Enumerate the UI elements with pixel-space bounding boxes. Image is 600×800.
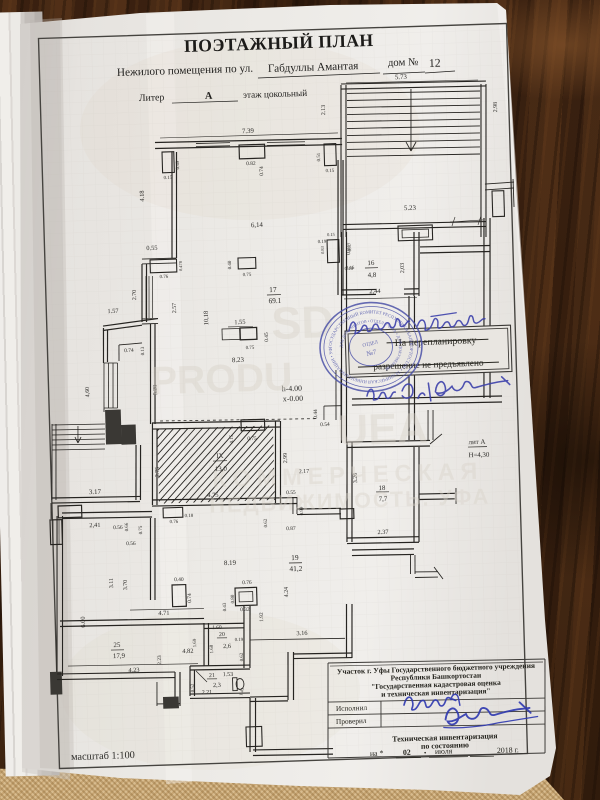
svg-text:0.56: 0.56 [113,525,123,531]
svg-text:0.74: 0.74 [124,348,134,354]
svg-text:Литер: Литер [139,92,165,104]
svg-text:июля: июля [435,746,453,756]
svg-text:2.57: 2.57 [172,303,178,314]
svg-text:0.19: 0.19 [235,638,244,643]
svg-text:20: 20 [219,632,225,638]
svg-text:5.73: 5.73 [395,74,408,81]
svg-text:0.15: 0.15 [326,169,335,174]
svg-text:SD: SD [271,296,335,349]
svg-text:2.13: 2.13 [321,105,327,116]
svg-text:17: 17 [269,285,277,294]
svg-text:21: 21 [209,673,215,679]
svg-text:4.18: 4.18 [139,190,146,201]
svg-text:5.23: 5.23 [404,205,417,212]
svg-text:0.82: 0.82 [246,161,256,167]
svg-text:6,14: 6,14 [251,222,264,229]
svg-text:UEA: UEA [336,404,428,455]
svg-text:2.98: 2.98 [493,102,499,113]
svg-text:4.24: 4.24 [284,587,290,598]
svg-text:0.83: 0.83 [320,245,325,254]
svg-text:7.39: 7.39 [242,128,255,135]
svg-text:4,8: 4,8 [368,272,377,279]
svg-text:0.74: 0.74 [259,166,265,176]
svg-text:А: А [205,91,213,102]
svg-text:0.66: 0.66 [125,522,130,531]
svg-text:масштаб 1:100: масштаб 1:100 [71,750,135,763]
svg-text:12: 12 [429,56,441,70]
svg-text:3.11: 3.11 [109,578,115,588]
svg-text:0.87: 0.87 [348,242,353,251]
svg-text:1.69: 1.69 [193,638,198,647]
svg-text:0.44: 0.44 [313,409,319,419]
svg-text:Проверил: Проверил [336,716,367,726]
svg-text:0.80: 0.80 [231,594,236,603]
svg-text:2,3: 2,3 [213,682,221,689]
svg-text:4.82: 4.82 [182,648,193,655]
svg-text:2.23: 2.23 [157,655,163,665]
svg-text:0.32: 0.32 [240,607,250,613]
svg-text:10,18: 10,18 [203,311,210,326]
svg-text:41,2: 41,2 [289,564,302,573]
svg-text:2.21: 2.21 [202,690,212,696]
svg-text:0.75: 0.75 [139,525,144,534]
svg-text:0.15: 0.15 [327,232,336,237]
svg-text:3.70: 3.70 [123,580,129,591]
svg-text:0.18: 0.18 [185,514,194,519]
svg-text:2.37: 2.37 [377,529,388,536]
svg-text:2,44: 2,44 [369,288,381,295]
svg-text:4,60: 4,60 [85,387,91,398]
svg-text:0.74: 0.74 [187,593,193,603]
svg-text:1.57: 1.57 [107,308,118,315]
svg-text:1.60: 1.60 [212,625,222,631]
svg-text:0.62: 0.62 [264,518,269,527]
svg-text:0.54: 0.54 [320,422,330,428]
svg-text:на *: на * [370,749,384,758]
svg-text:IX: IX [216,453,223,460]
svg-text:8.19: 8.19 [224,560,237,567]
svg-text:16: 16 [367,260,375,267]
svg-text:0.478: 0.478 [178,260,183,271]
svg-text:2018 г.: 2018 г. [497,745,519,755]
svg-text:1.68: 1.68 [210,644,215,653]
svg-text:0.75: 0.75 [243,273,252,278]
svg-text:1.92: 1.92 [259,612,265,622]
svg-text:19: 19 [291,553,299,562]
svg-text:0.55: 0.55 [146,245,157,252]
svg-text:3.17: 3.17 [89,489,102,496]
svg-text:Исполнил: Исполнил [336,703,368,713]
svg-text:02: 02 [403,748,411,757]
svg-text:0.51: 0.51 [317,152,322,161]
svg-text:лит А: лит А [469,439,486,447]
svg-text:0.76: 0.76 [170,520,179,525]
svg-text:PRODU: PRODU [150,355,293,404]
svg-text:0.87: 0.87 [286,526,296,532]
svg-text:4.71: 4.71 [158,610,169,617]
svg-text:2,03: 2,03 [400,263,406,274]
svg-text:0.76: 0.76 [242,580,252,586]
svg-text:1.55: 1.55 [234,319,245,326]
svg-text:0.52: 0.52 [191,683,196,692]
svg-text:2,41: 2,41 [89,522,100,529]
svg-text:25: 25 [113,642,121,649]
svg-text:3.16: 3.16 [296,630,307,637]
svg-text:0.56: 0.56 [126,541,136,547]
svg-text:0.75: 0.75 [246,346,255,351]
svg-text:0.43: 0.43 [223,602,228,611]
svg-text:1.53: 1.53 [223,672,233,678]
svg-text:0.45: 0.45 [264,332,270,342]
svg-text:0,16: 0,16 [346,266,355,271]
svg-text:0.40: 0.40 [174,577,184,583]
svg-text:0.40: 0.40 [228,260,233,269]
svg-text:0.13: 0.13 [141,346,146,355]
svg-text:17,9: 17,9 [113,653,126,660]
svg-text:2,6: 2,6 [223,643,231,650]
svg-text:0.76: 0.76 [160,275,169,280]
svg-text:этаж цокольный: этаж цокольный [243,88,308,101]
svg-text:2.99: 2.99 [283,453,289,464]
svg-text:2.70: 2.70 [132,290,138,301]
svg-text:0.62: 0.62 [240,652,245,661]
svg-text:0.19: 0.19 [318,240,327,245]
svg-text:дом №: дом № [388,56,419,69]
